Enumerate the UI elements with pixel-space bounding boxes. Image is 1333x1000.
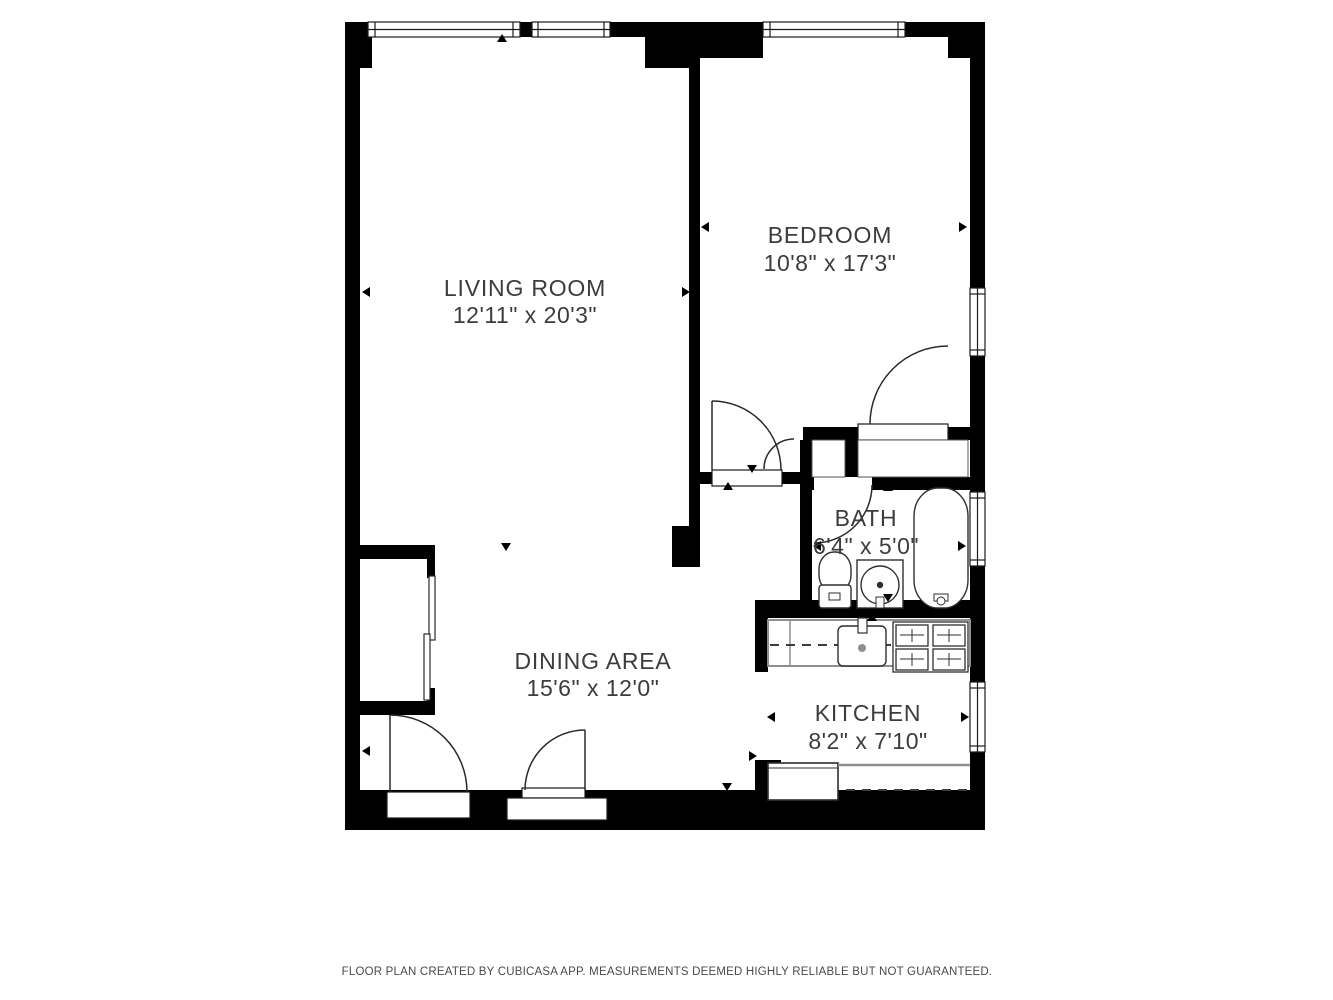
- arrow-right-icon: [682, 287, 690, 297]
- door-bedroom-closet: [870, 346, 948, 424]
- refrigerator-icon: [768, 763, 838, 800]
- closet-small: [812, 440, 845, 477]
- living-room-dimensions: 12'11" x 20'3": [453, 302, 597, 328]
- arrow-right-icon: [961, 712, 969, 722]
- room-labels: LIVING ROOM 12'11" x 20'3" BEDROOM 10'8"…: [444, 222, 928, 754]
- bedroom-label: BEDROOM: [768, 222, 892, 248]
- wall-dining-closet-bottom: [358, 701, 435, 715]
- arrow-down-icon: [722, 783, 732, 791]
- floor-plan-page: LIVING ROOM 12'11" x 20'3" BEDROOM 10'8"…: [0, 0, 1333, 1000]
- wall-hall-left-stub: [700, 472, 712, 484]
- arrow-left-icon: [362, 746, 370, 756]
- closet-large: [858, 440, 968, 477]
- closet-door-leaf: [858, 424, 948, 440]
- wall-bath-left: [800, 472, 812, 618]
- wall-closet-separator: [845, 440, 858, 477]
- arrow-left-icon: [701, 222, 709, 232]
- kitchen-label: KITCHEN: [815, 700, 922, 726]
- entry-step: [507, 798, 607, 820]
- bedroom-dimensions: 10'8" x 17'3": [764, 250, 897, 276]
- window-bath-right: [970, 492, 985, 566]
- hall-door-threshold: [712, 470, 782, 486]
- window-kitchen-right: [970, 682, 985, 752]
- window-living-2: [532, 22, 610, 37]
- door-entry: [525, 730, 585, 790]
- window-living-1: [368, 22, 520, 37]
- wall-kitchen-left: [755, 600, 768, 672]
- bath-label: BATH: [835, 505, 898, 531]
- wall-dining-closet-stub-top: [427, 545, 435, 578]
- floor-plan: LIVING ROOM 12'11" x 20'3" BEDROOM 10'8"…: [0, 0, 1333, 1000]
- door-dining-left: [390, 715, 467, 792]
- arrow-right-icon: [749, 751, 757, 761]
- kitchen-dimensions: 8'2" x 7'10": [808, 728, 927, 754]
- footer-disclaimer: FLOOR PLAN CREATED BY CUBICASA APP. MEAS…: [342, 966, 993, 978]
- dining-area-label: DINING AREA: [514, 648, 671, 674]
- living-room-label: LIVING ROOM: [444, 275, 606, 301]
- bath-dimensions: 6'4" x 5'0": [813, 533, 919, 559]
- wall-bedroom-bottom-right: [948, 427, 985, 440]
- stove-icon: [893, 622, 968, 672]
- wall-divider-foot: [672, 526, 700, 567]
- arrow-left-icon: [362, 287, 370, 297]
- left-door-threshold: [387, 792, 470, 818]
- arrow-right-icon: [959, 222, 967, 232]
- wall-dining-closet-top: [358, 545, 435, 559]
- arrow-left-icon: [767, 712, 775, 722]
- wall-hall-right-stub: [782, 472, 800, 484]
- toilet-icon: [819, 552, 851, 608]
- wall-living-bedroom-divider: [689, 37, 700, 567]
- entry-threshold: [522, 788, 585, 798]
- window-bedroom-right: [970, 288, 985, 356]
- arrow-down-icon: [501, 543, 511, 551]
- door-hall: [712, 401, 781, 470]
- window-bedroom-top: [763, 22, 905, 37]
- sliding-closet-doors: [424, 576, 435, 700]
- bedroom-closets: [812, 440, 968, 477]
- wall-closet-left: [800, 440, 812, 477]
- wall-left: [345, 22, 360, 830]
- bath-sink-icon: [857, 560, 903, 608]
- dining-area-dimensions: 15'6" x 12'0": [527, 675, 660, 701]
- wall-bedroom-bottom-left: [803, 427, 858, 440]
- wall-bedroom-top-right: [948, 22, 985, 58]
- sliding-panel-top: [429, 576, 435, 640]
- sliding-panel-bottom: [424, 634, 430, 700]
